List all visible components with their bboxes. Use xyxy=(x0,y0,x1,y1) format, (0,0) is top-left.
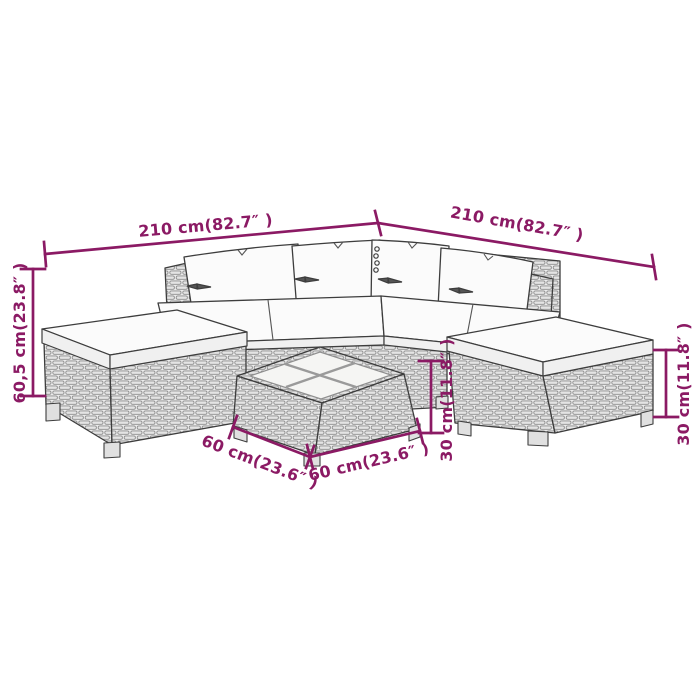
ottoman-foot xyxy=(104,442,120,458)
dimension-ottoman-height: 30 cm(11.8″ ) xyxy=(654,322,693,445)
dimension-label-table-height: 30 cm(11.8″ ) xyxy=(437,338,456,461)
right-ottoman xyxy=(447,317,653,446)
ottoman-foot xyxy=(458,421,471,436)
dimension-label-ottoman-height: 30 cm(11.8″ ) xyxy=(674,322,693,445)
dimension-diagram-canvas: 210 cm(82.7″ ) 210 cm(82.7″ ) 60,5 cm(23… xyxy=(0,0,700,700)
dimension-overall-height: 60,5 cm(23.8″ ) xyxy=(10,262,45,403)
furniture-dimension-diagram: 210 cm(82.7″ ) 210 cm(82.7″ ) 60,5 cm(23… xyxy=(0,0,700,700)
ottoman-foot xyxy=(641,410,653,427)
dimension-label-left-width: 210 cm(82.7″ ) xyxy=(138,210,274,241)
dimension-label-overall-height: 60,5 cm(23.8″ ) xyxy=(10,262,29,403)
ottoman-foot xyxy=(46,403,60,421)
ottoman-foot xyxy=(528,431,548,446)
